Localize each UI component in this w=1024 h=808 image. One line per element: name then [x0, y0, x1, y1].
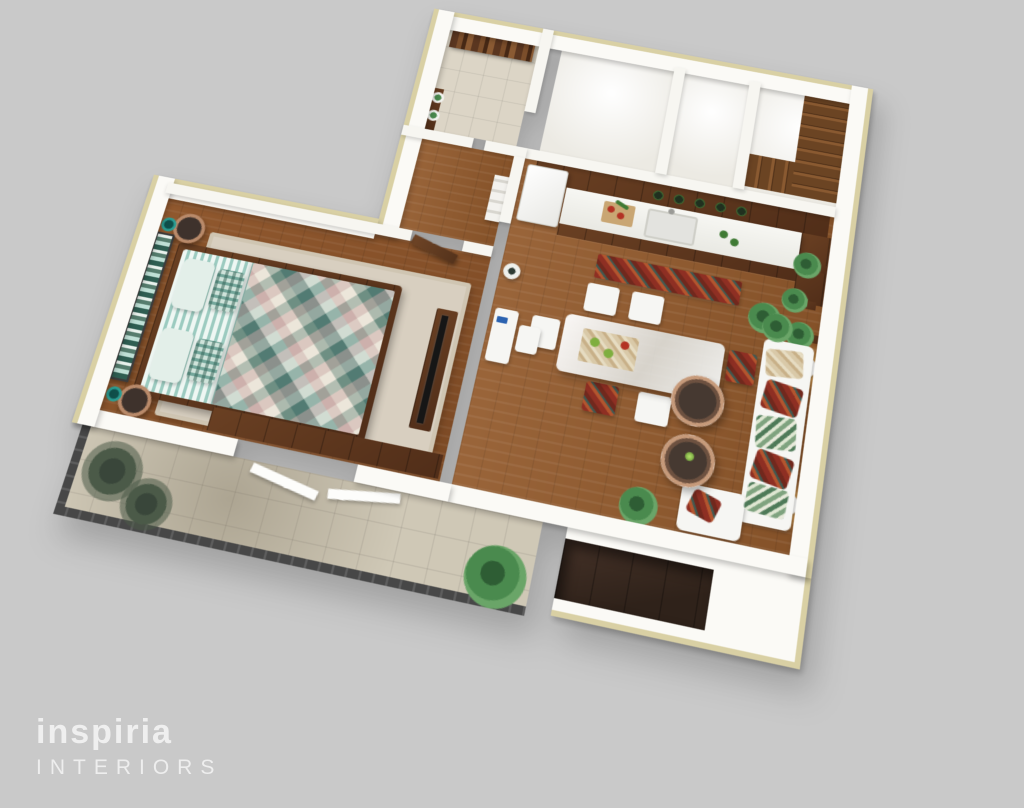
dining-chair-patterned [725, 350, 758, 387]
floor-plan-3d [15, 0, 868, 763]
dining-chair-patterned [581, 381, 619, 417]
dining-chair-white [583, 282, 620, 316]
dining-chair-white [628, 291, 665, 325]
sofa-cushion-beige [765, 348, 803, 379]
dining-chair-white [634, 391, 672, 427]
sofa-cushion-leaf [755, 415, 797, 452]
logo-brand: inspiria [36, 713, 222, 752]
logo-tagline: INTERIORS [36, 756, 222, 780]
scene-background: inspiria INTERIORS [0, 0, 1024, 808]
logo: inspiria INTERIORS [36, 713, 222, 780]
